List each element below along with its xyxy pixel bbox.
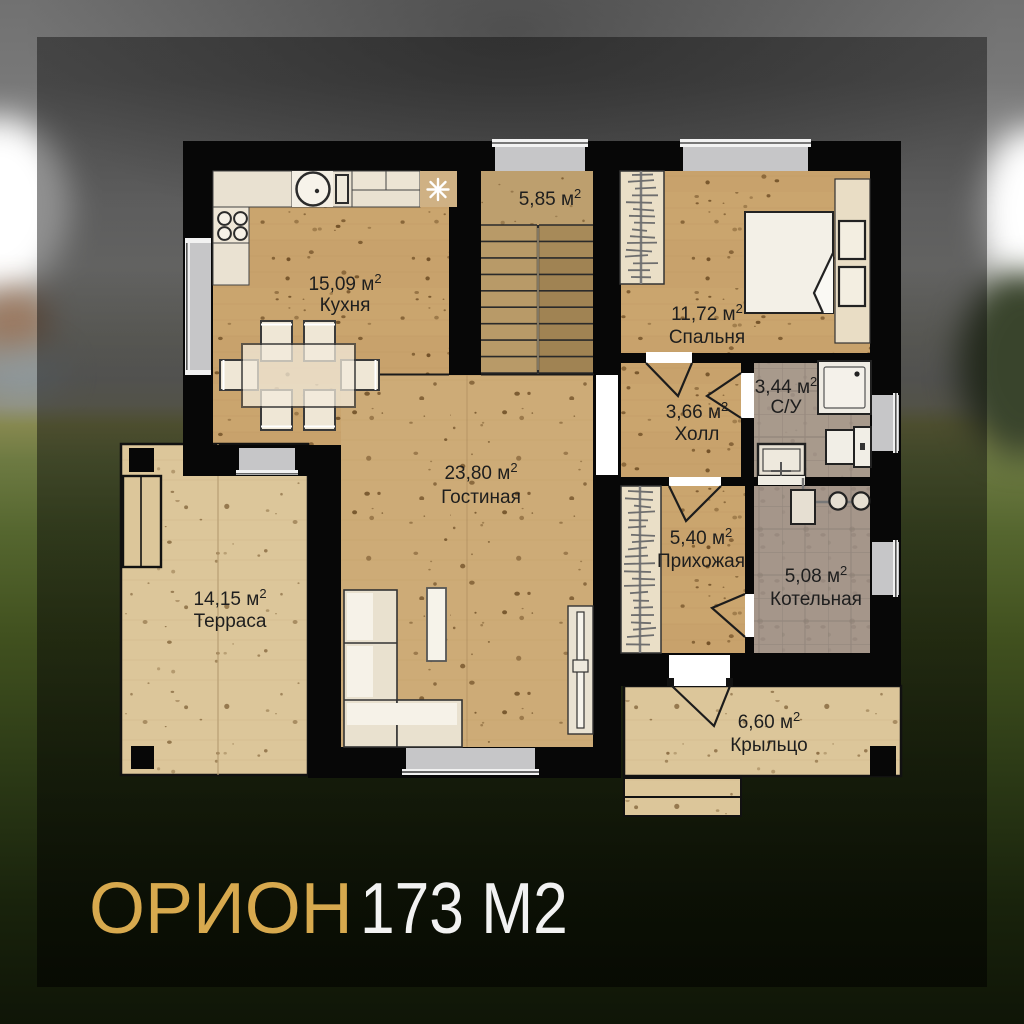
svg-text:11,72 м2: 11,72 м2 [671,301,743,325]
svg-text:Крыльцо: Крыльцо [730,735,808,756]
svg-text:С/У: С/У [770,397,802,418]
svg-text:Спальня: Спальня [669,327,745,348]
svg-text:Гостиная: Гостиная [441,487,521,508]
svg-text:6,60 м2: 6,60 м2 [738,709,801,733]
svg-text:5,08 м2: 5,08 м2 [785,563,848,587]
svg-text:Прихожая: Прихожая [657,551,745,572]
svg-text:14,15 м2: 14,15 м2 [193,586,266,610]
svg-text:Терраса: Терраса [194,611,267,632]
svg-text:Кухня: Кухня [320,295,371,316]
svg-text:3,66 м2: 3,66 м2 [666,399,729,423]
svg-text:3,44 м2: 3,44 м2 [755,374,818,398]
svg-text:5,40 м2: 5,40 м2 [670,525,733,549]
svg-text:15,09 м2: 15,09 м2 [308,271,381,295]
svg-text:Котельная: Котельная [770,589,862,610]
svg-text:5,85 м2: 5,85 м2 [519,186,582,210]
svg-text:23,80 м2: 23,80 м2 [444,460,517,484]
svg-text:Холл: Холл [675,424,720,445]
